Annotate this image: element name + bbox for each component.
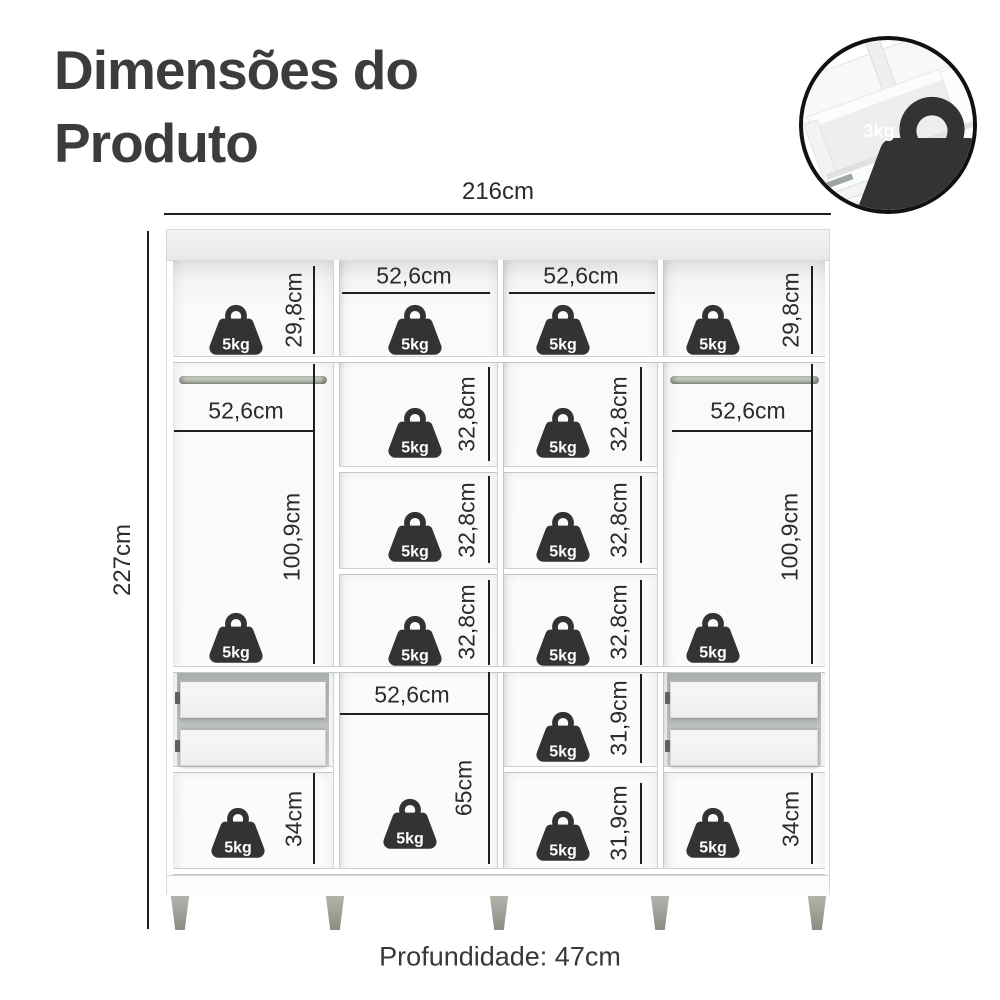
weight-capacity-icon: 5kg — [685, 612, 742, 665]
dimension-label-total-width: 216cm — [462, 178, 534, 206]
dimension-label: 32,8cm — [454, 376, 481, 451]
weight-capacity-icon: 3kg — [847, 87, 911, 145]
weight-capacity-icon: 5kg — [387, 511, 444, 564]
weight-capacity-icon: 5kg — [387, 407, 444, 460]
dimension-line — [488, 476, 490, 563]
shelf — [504, 466, 657, 473]
weight-capacity-icon: 5kg — [387, 304, 444, 357]
dimension-label: 100,9cm — [777, 493, 804, 581]
weight-capacity-icon: 5kg — [535, 407, 592, 460]
shelf — [664, 766, 825, 773]
drawer-front — [180, 680, 326, 718]
dimension-line — [488, 367, 490, 461]
hanging-rod — [670, 376, 819, 384]
dimension-line — [640, 367, 642, 461]
dimension-label: 32,8cm — [454, 482, 481, 557]
weight-capacity-icon: 5kg — [535, 810, 592, 863]
dimension-line — [313, 364, 315, 664]
drawer-rail — [175, 740, 180, 752]
drawer-detail-bubble: 3kg — [799, 36, 977, 214]
weight-capacity-icon: 5kg — [535, 304, 592, 357]
dimension-label: 32,8cm — [454, 584, 481, 659]
weight-capacity-icon: 5kg — [535, 511, 592, 564]
drawer-front — [670, 680, 818, 718]
dimension-line — [640, 476, 642, 563]
dimension-label: 32,8cm — [606, 584, 633, 659]
dimension-line — [640, 783, 642, 864]
dimension-label: 52,6cm — [376, 263, 451, 290]
dimension-line-total-width — [164, 213, 831, 215]
weight-capacity-label: 5kg — [210, 840, 267, 858]
dimension-line — [313, 266, 315, 354]
dimension-label: 29,8cm — [281, 272, 308, 347]
shelf — [504, 766, 657, 773]
dimension-label: 31,9cm — [606, 680, 633, 755]
drawer-front — [180, 728, 326, 766]
dimension-label: 29,8cm — [778, 272, 805, 347]
weight-capacity-label: 5kg — [387, 648, 444, 666]
drawer-rail — [665, 692, 670, 704]
dimension-label: 52,6cm — [710, 398, 785, 425]
weight-capacity-label: 5kg — [387, 337, 444, 355]
drawer-rail — [175, 692, 180, 704]
weight-capacity-icon: 5kg — [210, 807, 267, 860]
weight-capacity-label: 5kg — [535, 337, 592, 355]
weight-capacity-label: 5kg — [387, 544, 444, 562]
dimension-line — [174, 430, 314, 432]
shelf — [173, 766, 333, 773]
weight-capacity-label: 5kg — [535, 648, 592, 666]
dimension-line — [342, 292, 490, 294]
weight-capacity-label: 3kg — [847, 121, 911, 142]
weight-capacity-label: 5kg — [382, 831, 439, 849]
dimension-label: 65cm — [451, 760, 478, 816]
dimension-line — [640, 580, 642, 665]
dimension-line — [811, 364, 813, 664]
dimension-line — [488, 672, 490, 864]
dimension-line — [640, 674, 642, 763]
dimension-line — [313, 773, 315, 864]
weight-capacity-icon: 5kg — [208, 304, 265, 357]
dimension-line — [811, 773, 813, 864]
weight-capacity-icon: 5kg — [685, 304, 742, 357]
shelf — [504, 568, 657, 575]
weight-capacity-icon: 5kg — [382, 798, 439, 851]
weight-capacity-label: 5kg — [535, 440, 592, 458]
foot — [168, 896, 192, 930]
dimension-label-total-height: 227cm — [109, 524, 137, 596]
weight-capacity-icon: 5kg — [535, 615, 592, 668]
dimension-label: 31,9cm — [606, 785, 633, 860]
product-dimensions-diagram: Dimensões do Produto — [0, 0, 1000, 1000]
dimension-label: 32,8cm — [606, 376, 633, 451]
column-divider — [657, 260, 664, 868]
shelf — [339, 568, 497, 575]
foot — [648, 896, 672, 930]
drawer-front — [670, 728, 818, 766]
shelf — [173, 356, 825, 363]
dimension-label: 52,6cm — [374, 682, 449, 709]
page-title-line2: Produto — [54, 107, 418, 180]
dimension-label: 52,6cm — [543, 263, 618, 290]
hanging-rod — [179, 376, 327, 384]
dimension-line — [672, 430, 812, 432]
dimension-label-depth: Profundidade: 47cm — [379, 942, 621, 973]
weight-capacity-label: 5kg — [387, 440, 444, 458]
shelf — [173, 666, 825, 673]
dimension-label: 34cm — [778, 791, 805, 847]
weight-capacity-label: 5kg — [208, 337, 265, 355]
weight-capacity-label: 5kg — [685, 337, 742, 355]
weight-capacity-label: 5kg — [208, 645, 265, 663]
dimension-label: 52,6cm — [208, 398, 283, 425]
drawer-rail — [665, 740, 670, 752]
weight-capacity-label: 5kg — [535, 843, 592, 861]
dimension-line — [488, 580, 490, 665]
column-divider — [333, 260, 340, 868]
dimension-label: 100,9cm — [279, 493, 306, 581]
wardrobe-base-panel — [167, 875, 829, 895]
weight-capacity-icon: 5kg — [208, 612, 265, 665]
shelf — [339, 466, 497, 473]
foot — [805, 896, 829, 930]
weight-capacity-icon: 5kg — [685, 807, 742, 860]
dimension-label: 34cm — [281, 791, 308, 847]
dimension-label: 32,8cm — [606, 482, 633, 557]
page-title: Dimensões do Produto — [54, 34, 418, 180]
dimension-line — [811, 266, 813, 354]
foot — [487, 896, 511, 930]
weight-capacity-label: 5kg — [685, 840, 742, 858]
dimension-line — [340, 713, 489, 715]
weight-capacity-label: 5kg — [535, 544, 592, 562]
column-divider — [497, 260, 504, 868]
dimension-line — [509, 292, 655, 294]
wardrobe-top-panel — [167, 230, 829, 261]
weight-capacity-label: 5kg — [685, 645, 742, 663]
foot — [323, 896, 347, 930]
dimension-line-total-height — [147, 231, 149, 929]
weight-capacity-label: 5kg — [535, 744, 592, 762]
shelf — [173, 868, 825, 875]
page-title-line1: Dimensões do — [54, 34, 418, 107]
weight-capacity-icon: 5kg — [387, 615, 444, 668]
weight-capacity-icon: 5kg — [535, 711, 592, 764]
